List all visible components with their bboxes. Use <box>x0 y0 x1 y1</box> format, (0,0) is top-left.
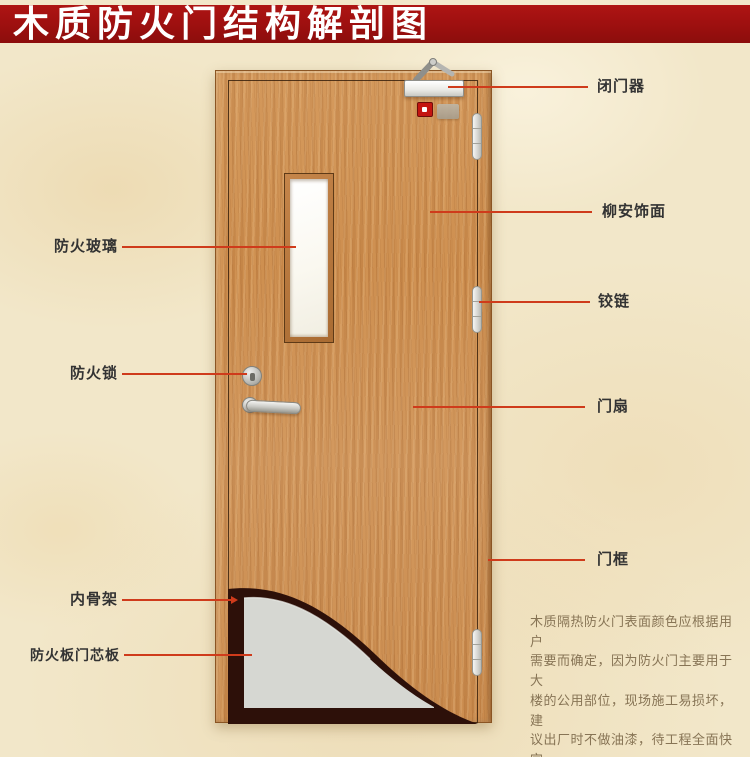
label-fire-lock: 防火锁 <box>28 366 118 382</box>
label-inner-frame: 内骨架 <box>28 592 118 608</box>
title-banner: 木质防火门结构解剖图 <box>0 5 750 43</box>
description-line: 需要而确定，因为防火门主要用于大 <box>530 651 740 690</box>
fire-glass-window <box>284 173 334 343</box>
description-line: 木质隔热防火门表面颜色应根据用户 <box>530 612 740 651</box>
door-closer-arm <box>406 57 468 82</box>
hinge-top <box>472 113 482 160</box>
leader-line-core-board <box>124 654 252 656</box>
sensor-device <box>437 104 459 119</box>
leader-line-hinge <box>479 301 590 303</box>
description-line: 议出厂时不做油漆，待工程全面快完 <box>530 730 740 757</box>
hinge-middle <box>472 286 482 333</box>
leader-line-veneer <box>430 211 592 213</box>
label-core-board: 防火板门芯板 <box>20 647 120 663</box>
leader-line-fire-glass <box>122 246 296 248</box>
label-hinge: 铰链 <box>598 294 630 310</box>
description-text: 木质隔热防火门表面颜色应根据用户 需要而确定，因为防火门主要用于大 楼的公用部位… <box>530 612 740 757</box>
door-closer-body <box>404 80 464 97</box>
label-door-frame: 门框 <box>597 552 629 568</box>
cutaway-section <box>228 581 478 724</box>
alarm-indicator-light <box>417 102 433 117</box>
fire-lock-cylinder <box>242 366 262 386</box>
core-board-layer <box>244 598 434 708</box>
infographic-canvas: 木质防火门结构解剖图 <box>0 0 750 757</box>
leader-line-fire-lock <box>122 373 247 375</box>
leader-line-inner-frame <box>122 599 232 601</box>
label-veneer: 柳安饰面 <box>602 204 666 220</box>
page-title: 木质防火门结构解剖图 <box>13 3 433 44</box>
leader-line-door-leaf <box>413 406 585 408</box>
label-door-closer: 闭门器 <box>597 79 645 95</box>
leader-line-door-closer <box>448 86 588 88</box>
label-fire-glass: 防火玻璃 <box>28 239 118 255</box>
fire-door-illustration <box>215 70 492 723</box>
leader-line-door-frame <box>488 559 585 561</box>
label-door-leaf: 门扇 <box>597 399 629 415</box>
inner-frame-arrowhead <box>231 596 238 604</box>
description-line: 楼的公用部位，现场施工易损坏，建 <box>530 691 740 730</box>
fire-glass-pane <box>290 179 328 337</box>
